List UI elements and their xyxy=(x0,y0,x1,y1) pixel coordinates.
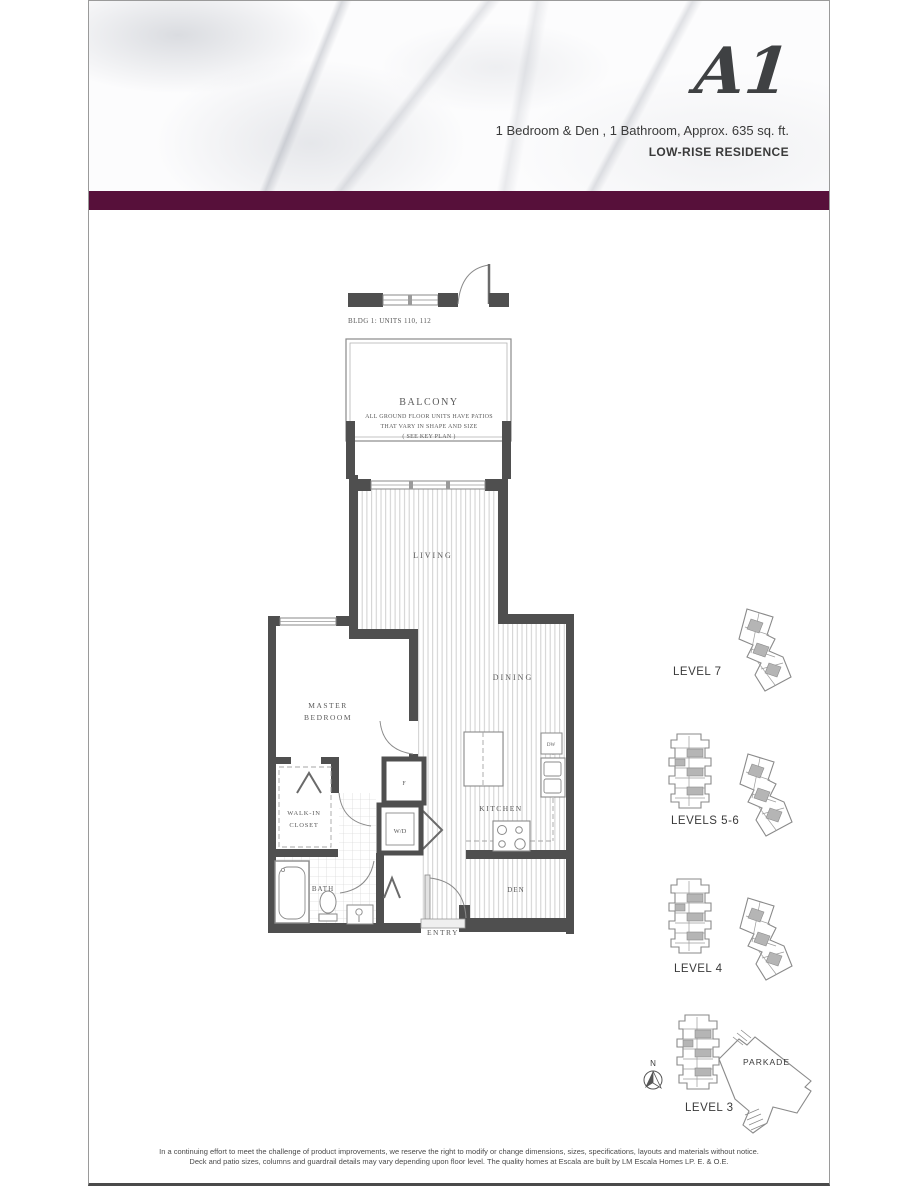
accent-band xyxy=(89,191,829,210)
balcony-note-3: ( SEE KEY PLAN ) xyxy=(402,433,455,440)
disclaimer-line2: Deck and patio sizes, columns and guardr… xyxy=(89,1157,829,1167)
parkade-label: PARKADE xyxy=(743,1057,790,1067)
floorplan-sheet: A1 1 Bedroom & Den , 1 Bathroom, Approx.… xyxy=(0,0,918,1188)
kitchen-sink xyxy=(541,758,565,797)
living-window-wall xyxy=(353,479,507,491)
keyplan-label-level7: LEVEL 7 xyxy=(673,666,721,678)
keyplan-label-level3: LEVEL 3 xyxy=(685,1102,733,1114)
keyplan-levels5-6: LEVELS 5-6 xyxy=(669,734,792,836)
room-label-bath: BATH xyxy=(312,885,334,893)
residence-type: LOW-RISE RESIDENCE xyxy=(496,145,789,159)
unit-logo: A1 xyxy=(491,29,793,115)
balcony-note-2: THAT VARY IN SHAPE AND SIZE xyxy=(380,424,477,430)
room-label-den: DEN xyxy=(507,886,524,894)
room-label-walkin1: WALK-IN xyxy=(287,810,320,817)
washer-dryer: W/D xyxy=(379,805,421,853)
svg-text:N: N xyxy=(650,1059,656,1068)
room-label-living: LIVING xyxy=(413,551,453,560)
stove xyxy=(493,821,530,851)
page: A1 1 Bedroom & Den , 1 Bathroom, Approx.… xyxy=(88,0,830,1186)
keyplan-level4: LEVEL 4 xyxy=(669,879,792,980)
keyplan-label-levels5-6: LEVELS 5-6 xyxy=(671,815,739,827)
entry-door-leaf xyxy=(425,875,430,919)
unit-subtitle: 1 Bedroom & Den , 1 Bathroom, Approx. 63… xyxy=(496,123,789,138)
header-text: A1 1 Bedroom & Den , 1 Bathroom, Approx.… xyxy=(496,29,789,159)
fridge-box: F xyxy=(384,759,424,803)
room-label-walkin2: CLOSET xyxy=(289,822,318,829)
disclaimer: In a continuing effort to meet the chall… xyxy=(89,1147,829,1167)
keyplan-level3: N LEVEL 3 PARKADE xyxy=(644,1015,811,1133)
svg-text:W/D: W/D xyxy=(394,828,407,835)
disclaimer-line1: In a continuing effort to meet the chall… xyxy=(89,1147,829,1157)
room-label-dining: DINING xyxy=(493,673,533,682)
room-label-entry: ENTRY xyxy=(427,928,459,937)
svg-text:DW: DW xyxy=(547,743,556,748)
floor-plan: BLDG 1: UNITS 110, 112 BALCONY ALL GROUN… xyxy=(268,264,574,937)
entry-threshold xyxy=(421,919,465,928)
keyplan-label-level4: LEVEL 4 xyxy=(674,963,723,975)
balcony: BALCONY ALL GROUND FLOOR UNITS HAVE PATI… xyxy=(346,339,511,479)
parkade-outline: PARKADE xyxy=(719,1030,811,1133)
bldg-units-label: BLDG 1: UNITS 110, 112 xyxy=(348,317,431,325)
north-arrow-icon: N xyxy=(644,1059,662,1089)
balcony-note-1: ALL GROUND FLOOR UNITS HAVE PATIOS xyxy=(365,414,493,420)
bldg-entry-diagram: BLDG 1: UNITS 110, 112 xyxy=(348,264,509,325)
room-label-master1: MASTER xyxy=(308,701,347,710)
room-label-master2: BEDROOM xyxy=(304,713,352,722)
dishwasher: DW xyxy=(541,733,562,754)
keyplan-level7: LEVEL 7 xyxy=(673,609,791,691)
room-label-kitchen: KITCHEN xyxy=(479,804,522,813)
balcony-label: BALCONY xyxy=(399,397,459,408)
